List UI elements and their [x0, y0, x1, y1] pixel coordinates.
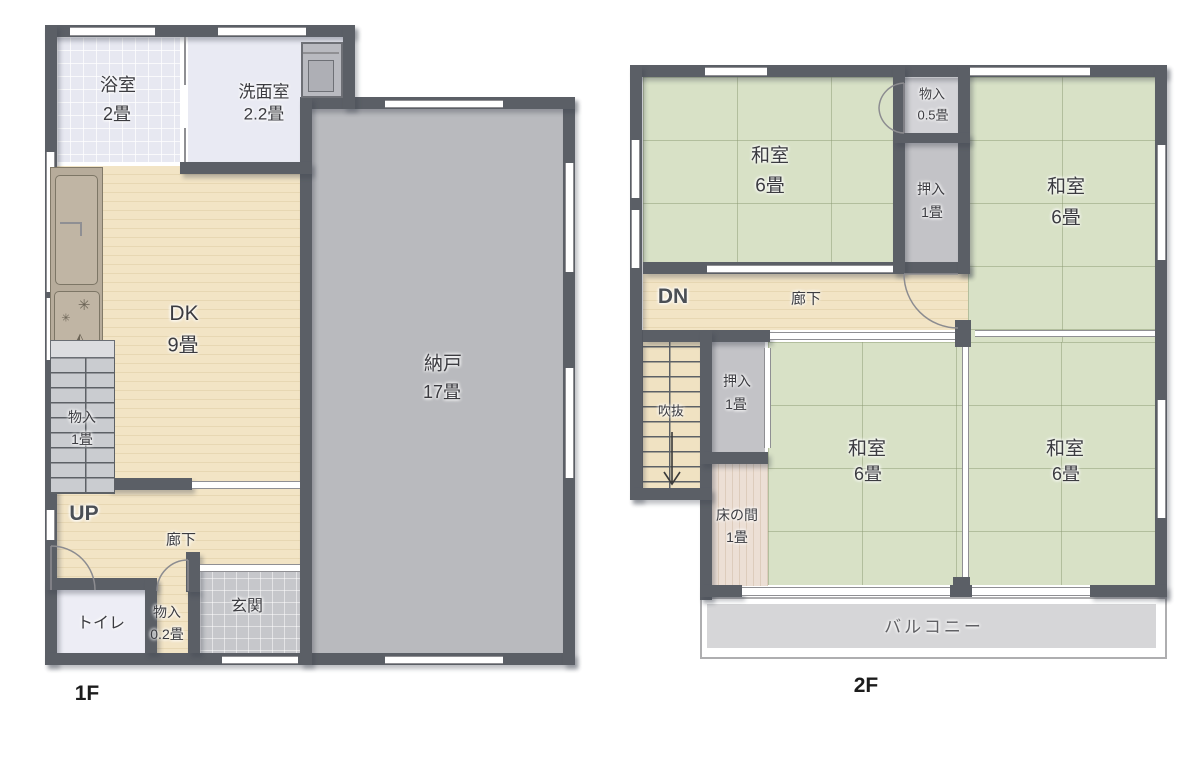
label-washitsu-sw-name: 和室 — [848, 434, 886, 461]
kitchen-sink — [55, 175, 98, 285]
label-stairs-up: UP — [69, 502, 98, 526]
label-tokonoma-name: 床の間 — [716, 505, 758, 525]
entrance-sliding-door — [222, 656, 298, 664]
wall-segment — [343, 25, 355, 109]
window — [705, 67, 767, 76]
window — [46, 510, 55, 540]
partition-line — [184, 128, 186, 162]
faucet-icon — [80, 222, 82, 236]
label-stairs-down: DN — [658, 285, 688, 309]
wall-segment — [1090, 585, 1167, 597]
label-washitsu-nw-name: 和室 — [751, 141, 789, 168]
label-washitsu-sw-size: 6畳 — [854, 460, 882, 486]
balcony-sliding-window — [972, 587, 1090, 596]
window — [970, 67, 1090, 76]
label-corridor-1f: 廊下 — [166, 529, 196, 550]
label-storage-name: 納戸 — [424, 349, 462, 376]
stove-burner-icon: ✳ — [78, 296, 91, 314]
label-corridor-2f: 廊下 — [791, 288, 821, 309]
label-washitsu-nw-size: 6畳 — [755, 171, 785, 198]
label-entrance: 玄関 — [231, 592, 263, 616]
sliding-door — [975, 330, 1155, 337]
label-washitsu-se-name: 和室 — [1046, 434, 1084, 461]
sliding-door — [192, 481, 300, 489]
label-tokonoma-size: 1畳 — [726, 527, 748, 547]
window — [631, 140, 640, 198]
label-washitsu-se-size: 6畳 — [1052, 460, 1080, 486]
wall-segment — [180, 162, 312, 174]
label-storage-small-name: 物入 — [919, 84, 945, 103]
label-washitsu-ne-name: 和室 — [1047, 172, 1085, 199]
stair-landing — [50, 340, 115, 358]
label-dk-name: DK — [169, 302, 198, 326]
door-arc — [50, 545, 96, 592]
window — [1157, 145, 1166, 260]
room-washitsu-nw — [643, 77, 893, 262]
label-bath-size: 2畳 — [103, 100, 131, 126]
label-oshiire-center-size: 1畳 — [725, 394, 747, 414]
faucet-icon — [60, 222, 82, 224]
closet-door — [764, 348, 771, 448]
label-atrium: 吹抜 — [658, 401, 684, 420]
label-toilet: トイレ — [77, 609, 125, 633]
window — [565, 163, 574, 272]
window — [218, 27, 306, 36]
window — [631, 210, 640, 268]
wall-segment — [108, 478, 192, 490]
window — [385, 100, 503, 108]
window — [70, 27, 155, 36]
label-oshiire-north-name: 押入 — [917, 179, 945, 199]
door-arc — [155, 558, 191, 594]
label-washroom-size: 2.2畳 — [244, 100, 285, 125]
balcony-sliding-window — [742, 587, 950, 596]
label-balcony: バルコニー — [884, 613, 984, 638]
stairs-down-arrow — [660, 432, 684, 490]
label-storage-small-size: 0.5畳 — [917, 105, 948, 124]
stove-burner-icon: ✳ — [61, 312, 70, 325]
window — [565, 368, 574, 478]
label-entry-closet-size: 0.2畳 — [150, 624, 183, 644]
wall-segment — [700, 452, 768, 464]
label-understairs-closet-size: 1畳 — [71, 429, 93, 449]
washing-machine-drum — [308, 60, 334, 92]
partition-line — [184, 37, 186, 85]
label-floor-2f: 2F — [854, 674, 879, 698]
wall-segment — [300, 97, 312, 665]
washing-machine-panel — [303, 52, 339, 54]
label-oshiire-center-name: 押入 — [723, 371, 751, 391]
sliding-door — [707, 265, 893, 273]
sliding-door — [962, 347, 969, 577]
label-storage-size: 17畳 — [423, 378, 461, 404]
label-understairs-closet-name: 物入 — [68, 407, 96, 427]
label-washitsu-ne-size: 6畳 — [1051, 203, 1081, 230]
window — [1157, 400, 1166, 518]
floorplan-canvas: ✳ ✳ ◭ 浴室 2畳 洗面室 2.2畳 DK 9畳 納戸 17畳 物入 1畳 … — [0, 0, 1200, 765]
wall-segment — [630, 65, 642, 500]
window — [385, 656, 503, 664]
label-entry-closet-name: 物入 — [153, 602, 181, 622]
wall-post — [953, 577, 970, 591]
wall-segment — [700, 330, 712, 600]
sliding-door — [200, 564, 300, 572]
wall-segment — [958, 65, 970, 274]
label-bath-name: 浴室 — [100, 71, 136, 97]
label-dk-size: 9畳 — [167, 329, 198, 358]
sliding-door — [770, 332, 955, 340]
label-oshiire-north-size: 1畳 — [921, 202, 943, 222]
double-door-arc — [872, 80, 908, 136]
room-tokonoma — [712, 464, 768, 586]
door-arc — [902, 272, 960, 330]
wall-segment — [700, 585, 742, 597]
wall-segment — [188, 590, 200, 653]
label-floor-1f: 1F — [75, 682, 100, 706]
